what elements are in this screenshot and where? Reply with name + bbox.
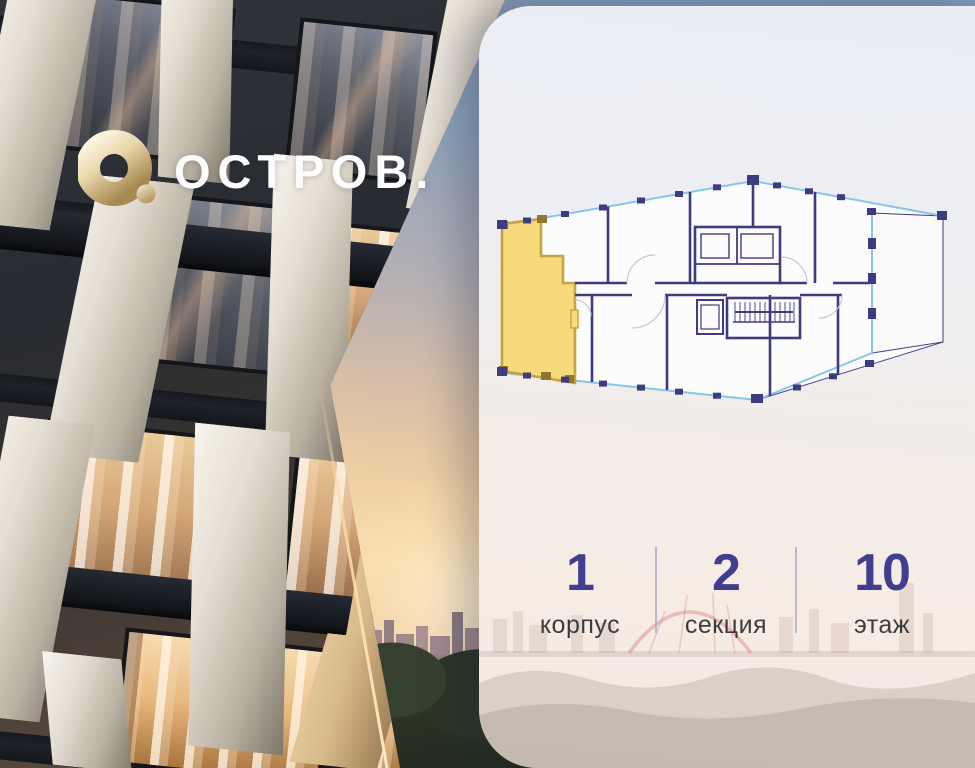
stats-divider: [655, 547, 657, 633]
stat-building-value: 1: [566, 548, 594, 598]
stat-building: 1 корпус: [505, 540, 655, 640]
brand-logo: ОСТРОВ.: [78, 130, 435, 210]
logo-o-icon: [78, 130, 158, 210]
unit-notch: [571, 310, 578, 328]
stat-floor-value: 10: [854, 548, 910, 598]
terrace: [872, 213, 943, 353]
stat-section-label: секция: [685, 611, 767, 640]
stats-divider: [795, 547, 797, 633]
apartment-card: 1 корпус 2 секция 10 этаж: [479, 6, 975, 768]
stat-floor-label: этаж: [854, 611, 910, 640]
apartment-stats: 1 корпус 2 секция 10 этаж: [505, 540, 967, 640]
stat-floor: 10 этаж: [797, 540, 967, 640]
floor-plan: [497, 172, 950, 405]
stat-section-value: 2: [712, 548, 740, 598]
stat-building-label: корпус: [540, 611, 620, 640]
stat-section: 2 секция: [657, 540, 795, 640]
logo-wordmark: ОСТРОВ.: [174, 142, 435, 199]
